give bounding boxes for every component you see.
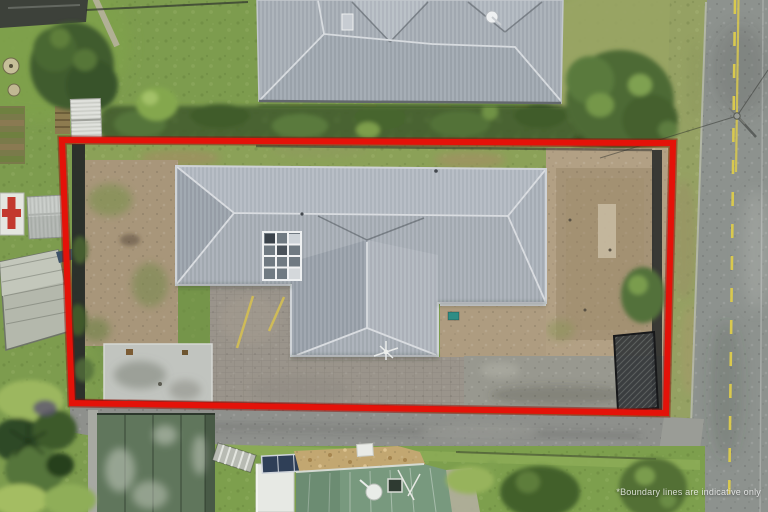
tree-stump bbox=[8, 84, 20, 96]
small-object bbox=[448, 312, 459, 320]
shrub bbox=[621, 267, 665, 323]
bird bbox=[434, 169, 438, 173]
small-white-shed bbox=[70, 98, 101, 139]
garden-beds bbox=[0, 106, 25, 164]
aerial-photo-scene bbox=[0, 0, 768, 512]
neighbor-house-roof bbox=[257, 0, 563, 107]
roof-vent bbox=[388, 479, 402, 492]
mesh-gate bbox=[614, 332, 658, 411]
wood-pallet bbox=[55, 106, 70, 134]
power-pole bbox=[734, 113, 740, 119]
bird bbox=[300, 212, 303, 215]
first-aid-shed bbox=[0, 193, 24, 235]
chimney bbox=[357, 443, 374, 456]
conservatory-skylight bbox=[262, 231, 302, 281]
concrete-pad bbox=[104, 344, 212, 405]
light-bush bbox=[136, 87, 178, 121]
green-garage-roof bbox=[88, 410, 215, 512]
skylight bbox=[342, 14, 353, 30]
aerial-photo: *Boundary lines are indicative only bbox=[0, 0, 768, 512]
